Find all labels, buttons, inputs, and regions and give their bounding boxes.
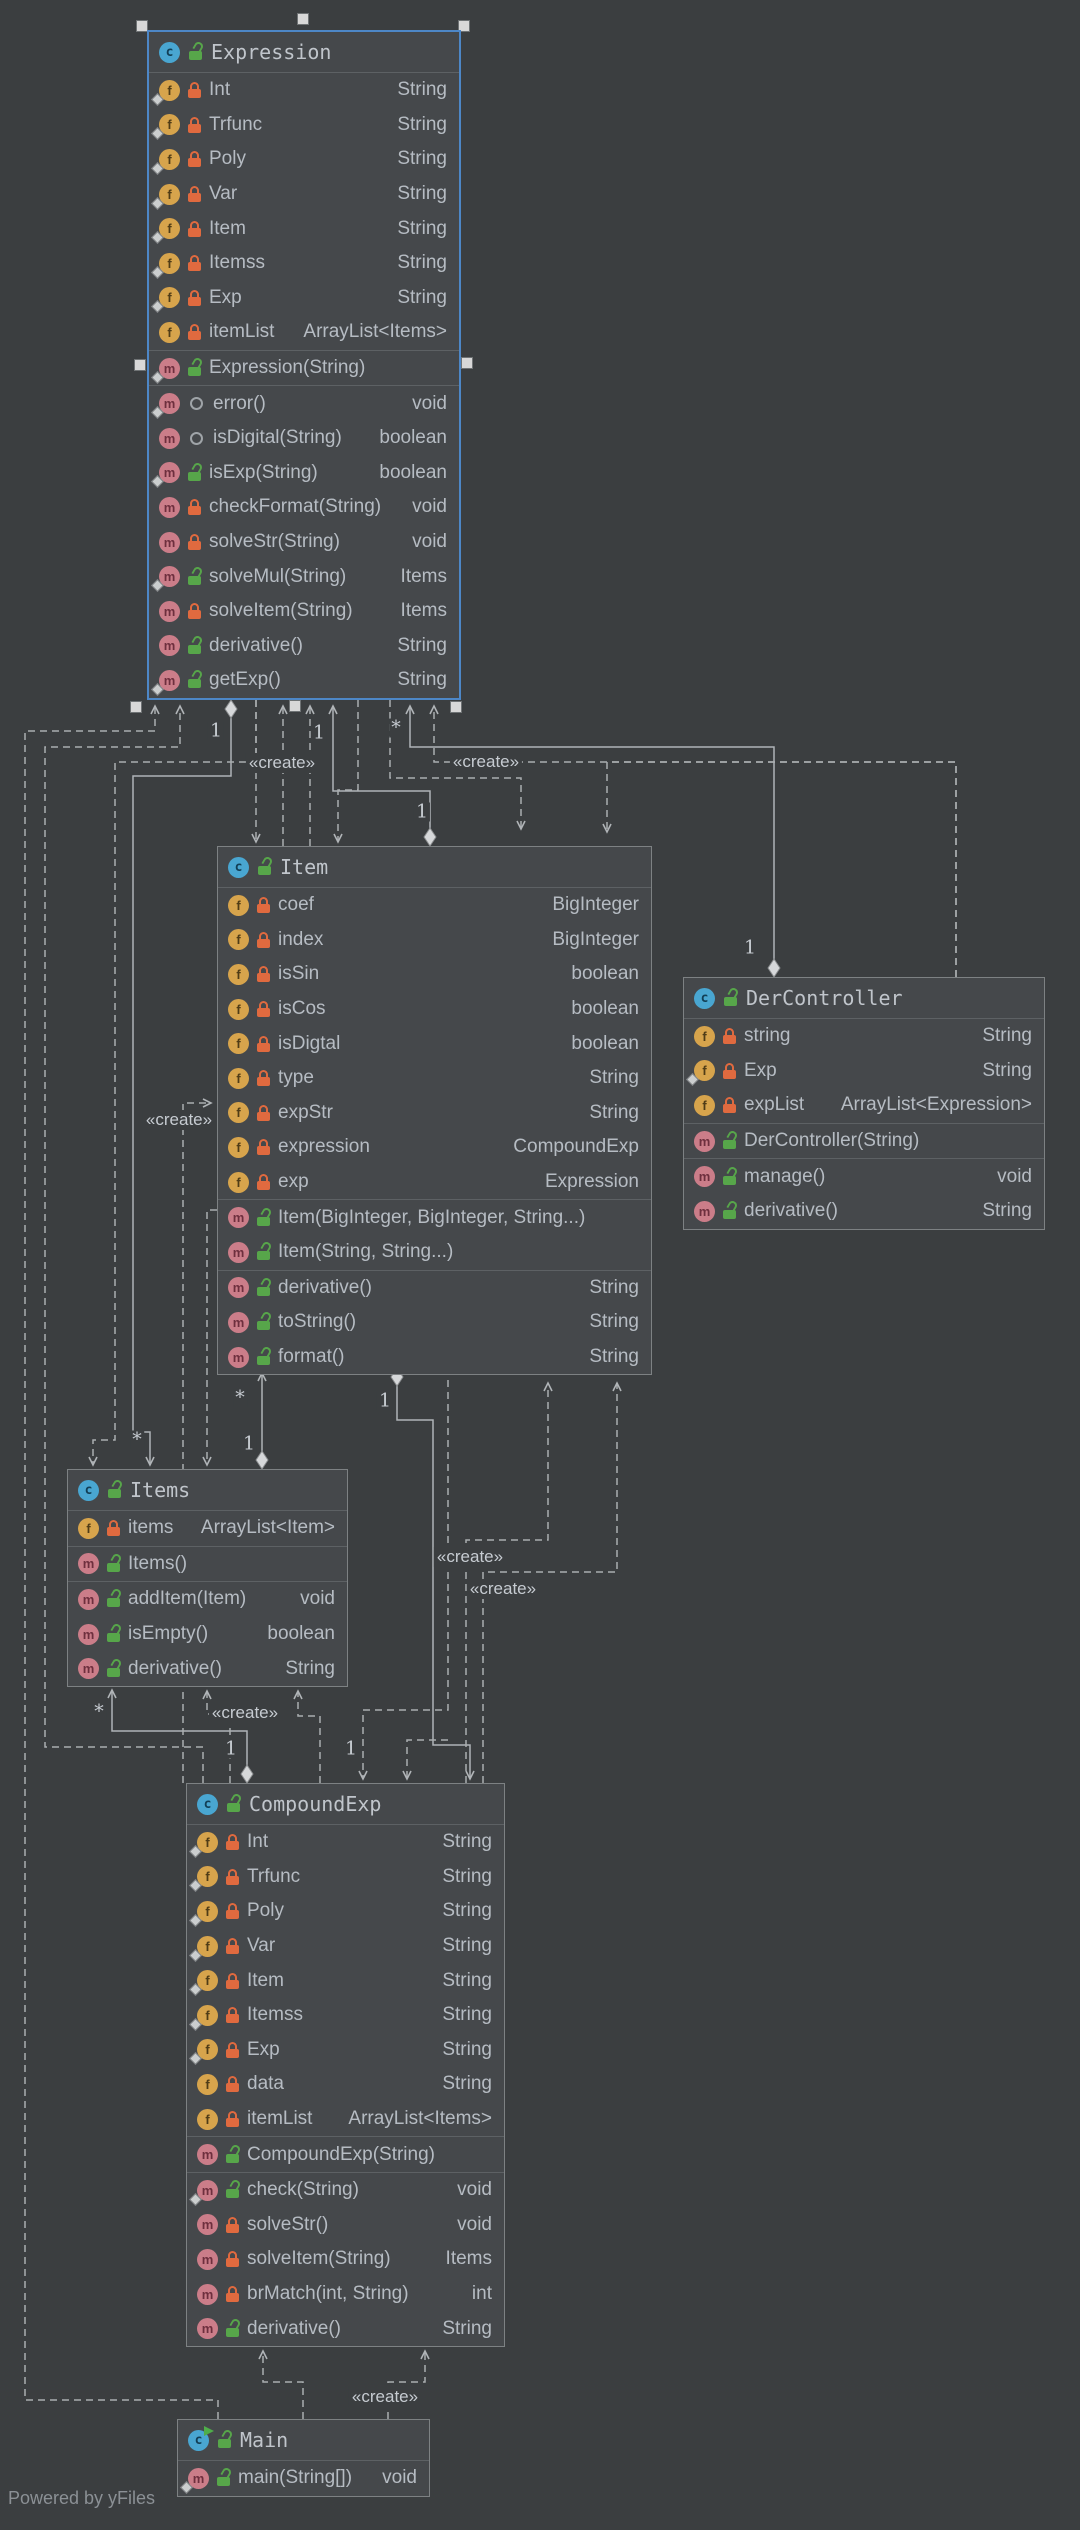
method-icon: m [159, 601, 180, 622]
public-lock-icon [723, 1133, 736, 1149]
public-lock-icon [188, 465, 201, 481]
final-marker-icon [189, 2018, 202, 2031]
member-row-trfunc: fTrfuncString [149, 108, 459, 143]
methods-section: maddItem(Item)voidmisEmpty()booleanmderi… [68, 1581, 347, 1686]
method-icon: m [228, 1277, 249, 1298]
member-type: String [387, 252, 447, 274]
member-type: void [447, 2214, 492, 2236]
member-row-string: fstringString [684, 1019, 1044, 1054]
member-type: ArrayList<Item> [191, 1517, 335, 1539]
member-row-additem-item-: maddItem(Item)void [68, 1582, 347, 1617]
member-type: Expression [535, 1171, 639, 1193]
class-name: DerController [746, 986, 903, 1010]
field-icon: f [197, 2039, 218, 2060]
member-name: checkFormat(String) [209, 496, 381, 518]
member-name: Trfunc [247, 1866, 300, 1888]
member-name: manage() [744, 1166, 825, 1188]
multiplicity-label: 1 [208, 722, 224, 741]
public-lock-icon [257, 1244, 270, 1260]
member-type: String [579, 1277, 639, 1299]
member-type: String [432, 2073, 492, 2095]
method-icon: m [159, 670, 180, 691]
fields-section: fcoefBigIntegerfindexBigIntegerfisSinboo… [218, 887, 651, 1199]
method-icon: m [228, 1242, 249, 1263]
member-name: solveItem(String) [247, 2248, 391, 2270]
public-lock-icon [107, 1591, 120, 1607]
class-title-row[interactable]: cExpression [149, 32, 459, 72]
private-lock-icon [226, 1973, 239, 1989]
field-icon: f [159, 80, 180, 101]
member-type: String [387, 218, 447, 240]
member-type: Items [391, 566, 447, 588]
member-row-poly: fPolyString [149, 142, 459, 177]
member-name: Var [247, 1935, 275, 1957]
member-type: String [579, 1067, 639, 1089]
member-row-index: findexBigInteger [218, 923, 651, 958]
public-lock-icon [257, 1280, 270, 1296]
private-lock-icon [723, 1097, 736, 1113]
private-lock-icon [188, 82, 201, 98]
member-row-expression: fexpressionCompoundExp [218, 1130, 651, 1165]
private-lock-icon [188, 499, 201, 515]
member-name: derivative() [247, 2318, 341, 2340]
private-lock-icon [226, 2286, 239, 2302]
multiplicity-label: 1 [343, 1740, 359, 1759]
field-icon: f [694, 1060, 715, 1081]
member-name: itemList [247, 2108, 312, 2130]
class-title-row[interactable]: cDerController [684, 978, 1044, 1018]
member-name: getExp() [209, 669, 281, 691]
class-name: Item [280, 855, 328, 879]
method-icon: m [78, 1658, 99, 1679]
member-row-solveitem-string-: msolveItem(String)Items [187, 2242, 504, 2277]
member-type: BigInteger [542, 929, 639, 951]
member-row-itemlist: fitemListArrayList<Items> [187, 2102, 504, 2137]
method-icon: m [159, 428, 180, 449]
public-lock-icon [217, 2470, 230, 2486]
member-name: solveMul(String) [209, 566, 346, 588]
member-name: Int [247, 1831, 268, 1853]
method-icon: m [78, 1624, 99, 1645]
member-name: Var [209, 183, 237, 205]
member-row-exp: fExpString [187, 2033, 504, 2068]
public-lock-icon [188, 360, 201, 376]
field-icon: f [197, 1832, 218, 1853]
field-icon: f [197, 2074, 218, 2095]
class-node-items[interactable]: cItemsfitemsArrayList<Item>mItems()maddI… [67, 1469, 348, 1687]
member-row-isdigital-string-: misDigital(String)boolean [149, 421, 459, 456]
member-row-derivative-: mderivative()String [187, 2311, 504, 2346]
member-name: isSin [278, 963, 319, 985]
methods-section: mderivative()StringmtoString()Stringmfor… [218, 1270, 651, 1375]
method-icon: m [197, 2214, 218, 2235]
private-lock-icon [226, 1834, 239, 1850]
member-type: Items [436, 2248, 492, 2270]
class-icon: c [188, 2430, 209, 2451]
member-row-isdigtal: fisDigtalboolean [218, 1026, 651, 1061]
class-title-row[interactable]: cCompoundExp [187, 1784, 504, 1824]
member-row-solvestr-: msolveStr()void [187, 2208, 504, 2243]
member-name: expList [744, 1094, 804, 1116]
member-row-derivative-: mderivative()String [149, 629, 459, 664]
member-row-isexp-string-: misExp(String)boolean [149, 456, 459, 491]
field-icon: f [159, 149, 180, 170]
member-type: boolean [369, 427, 447, 449]
member-type: String [432, 2004, 492, 2026]
field-icon: f [197, 1901, 218, 1922]
field-icon: f [228, 1137, 249, 1158]
member-name: derivative() [744, 1200, 838, 1222]
member-row-isempty-: misEmpty()boolean [68, 1617, 347, 1652]
private-lock-icon [226, 2251, 239, 2267]
public-lock-icon [107, 1556, 120, 1572]
yfiles-watermark: Powered by yFiles [8, 2488, 155, 2509]
member-name: format() [278, 1346, 345, 1368]
field-icon: f [694, 1026, 715, 1047]
member-type: void [402, 496, 447, 518]
member-name: Expression(String) [209, 357, 365, 379]
private-lock-icon [257, 966, 270, 982]
member-type: String [972, 1200, 1032, 1222]
member-row-solvemul-string-: msolveMul(String)Items [149, 559, 459, 594]
class-node-dercontroller[interactable]: cDerControllerfstringStringfExpStringfex… [683, 977, 1045, 1230]
member-row-itemlist: fitemListArrayList<Items> [149, 315, 459, 350]
class-icon: c [78, 1480, 99, 1501]
method-icon: m [228, 1347, 249, 1368]
member-row-var: fVarString [187, 1929, 504, 1964]
constructors-section: mItem(BigInteger, BigInteger, String...)… [218, 1199, 651, 1269]
method-icon: m [197, 2180, 218, 2201]
private-lock-icon [188, 290, 201, 306]
member-name: solveItem(String) [209, 600, 353, 622]
field-icon: f [197, 1936, 218, 1957]
class-icon: c [197, 1794, 218, 1815]
member-name: DerController(String) [744, 1130, 919, 1152]
public-lock-icon [107, 1661, 120, 1677]
create-stereotype-label: «create» [467, 1579, 539, 1599]
method-icon: m [228, 1207, 249, 1228]
member-type: ArrayList<Expression> [831, 1094, 1032, 1116]
member-type: void [447, 2179, 492, 2201]
member-row-item: fItemString [187, 1963, 504, 1998]
final-marker-icon [151, 197, 164, 210]
field-icon: f [197, 2005, 218, 2026]
private-lock-icon [226, 2076, 239, 2092]
member-row-solvestr-string-: msolveStr(String)void [149, 525, 459, 560]
member-row-itemss: fItemssString [149, 246, 459, 281]
member-row-int: fIntString [149, 73, 459, 108]
member-name: Trfunc [209, 114, 262, 136]
member-type: boolean [561, 963, 639, 985]
private-lock-icon [188, 603, 201, 619]
methods-section: mmain(String[])void [178, 2460, 429, 2496]
public-lock-icon [257, 1349, 270, 1365]
method-icon: m [694, 1201, 715, 1222]
fields-section: fitemsArrayList<Item> [68, 1510, 347, 1546]
member-type: String [387, 183, 447, 205]
field-icon: f [197, 1970, 218, 1991]
final-marker-icon [189, 1949, 202, 1962]
member-name: isDigital(String) [213, 427, 342, 449]
field-icon: f [159, 253, 180, 274]
final-marker-icon [151, 300, 164, 313]
member-name: index [278, 929, 323, 951]
final-marker-icon [189, 1880, 202, 1893]
member-name: Itemss [247, 2004, 303, 2026]
final-marker-icon [151, 93, 164, 106]
field-icon: f [78, 1518, 99, 1539]
member-type: boolean [257, 1623, 335, 1645]
member-type: boolean [561, 1033, 639, 1055]
class-node-compoundexp[interactable]: cCompoundExpfIntStringfTrfuncStringfPoly… [186, 1783, 505, 2347]
member-name: addItem(Item) [128, 1588, 246, 1610]
package-visibility-icon [190, 397, 203, 410]
member-type: ArrayList<Items> [293, 321, 447, 343]
member-type: Items [391, 600, 447, 622]
multiplicity-label: 1 [241, 1435, 257, 1454]
member-name: coef [278, 894, 314, 916]
public-lock-icon [188, 672, 201, 688]
member-row-trfunc: fTrfuncString [187, 1860, 504, 1895]
member-name: Int [209, 79, 230, 101]
member-type: BigInteger [542, 894, 639, 916]
member-row-item-biginteger-biginteger-string-: mItem(BigInteger, BigInteger, String...) [218, 1200, 651, 1235]
private-lock-icon [188, 151, 201, 167]
class-name: Items [130, 1478, 190, 1502]
member-type: String [387, 669, 447, 691]
member-name: check(String) [247, 2179, 359, 2201]
member-row-brmatch-int-string-: mbrMatch(int, String)int [187, 2277, 504, 2312]
method-icon: m [159, 358, 180, 379]
method-icon: m [197, 2318, 218, 2339]
member-type: void [372, 2467, 417, 2489]
member-row-solveitem-string-: msolveItem(String)Items [149, 594, 459, 629]
public-lock-icon [108, 1482, 121, 1498]
private-lock-icon [188, 534, 201, 550]
method-icon: m [78, 1553, 99, 1574]
member-name: isCos [278, 998, 326, 1020]
final-marker-icon [151, 128, 164, 141]
method-icon: m [159, 635, 180, 656]
member-row-tostring-: mtoString()String [218, 1305, 651, 1340]
create-stereotype-label: «create» [209, 1703, 281, 1723]
package-visibility-icon [190, 432, 203, 445]
public-lock-icon [723, 1169, 736, 1185]
private-lock-icon [107, 1520, 120, 1536]
final-marker-icon [151, 371, 164, 384]
private-lock-icon [188, 186, 201, 202]
member-row-expstr: fexpStrString [218, 1096, 651, 1131]
methods-section: mmanage()voidmderivative()String [684, 1158, 1044, 1228]
member-row-derivative-: mderivative()String [218, 1271, 651, 1306]
public-lock-icon [226, 2147, 239, 2163]
member-name: isDigtal [278, 1033, 340, 1055]
member-type: String [972, 1060, 1032, 1082]
member-type: ArrayList<Items> [338, 2108, 492, 2130]
method-icon: m [694, 1166, 715, 1187]
member-name: exp [278, 1171, 309, 1193]
final-marker-icon [151, 683, 164, 696]
field-icon: f [159, 218, 180, 239]
member-type: String [387, 287, 447, 309]
member-name: expression [278, 1136, 370, 1158]
member-type: String [275, 1658, 335, 1680]
member-row-explist: fexpListArrayList<Expression> [684, 1088, 1044, 1123]
member-row-int: fIntString [187, 1825, 504, 1860]
member-type: String [432, 1900, 492, 1922]
public-lock-icon [257, 1314, 270, 1330]
member-row-poly: fPolyString [187, 1894, 504, 1929]
class-node-item[interactable]: cItemfcoefBigIntegerfindexBigIntegerfisS… [217, 846, 652, 1375]
class-title-row[interactable]: cItem [218, 847, 651, 887]
member-row-checkformat-string-: mcheckFormat(String)void [149, 490, 459, 525]
fields-section: fIntStringfTrfuncStringfPolyStringfVarSt… [187, 1824, 504, 2136]
member-type: String [432, 1970, 492, 1992]
member-type: boolean [561, 998, 639, 1020]
member-type: String [432, 2318, 492, 2340]
final-marker-icon [189, 1914, 202, 1927]
member-name: derivative() [278, 1277, 372, 1299]
method-icon: m [78, 1589, 99, 1610]
member-row-compoundexp-string-: mCompoundExp(String) [187, 2137, 504, 2172]
member-row-item-string-string-: mItem(String, String...) [218, 1235, 651, 1270]
field-icon: f [228, 1102, 249, 1123]
member-type: String [972, 1025, 1032, 1047]
private-lock-icon [257, 1001, 270, 1017]
member-row-derivative-: mderivative()String [68, 1651, 347, 1686]
class-node-expression[interactable]: cExpressionfIntStringfTrfuncStringfPolyS… [147, 30, 461, 700]
class-name: Main [240, 2428, 288, 2452]
private-lock-icon [257, 1174, 270, 1190]
public-lock-icon [188, 569, 201, 585]
public-lock-icon [218, 2432, 231, 2448]
method-icon: m [188, 2468, 209, 2489]
create-stereotype-label: «create» [143, 1110, 215, 1130]
class-title-row[interactable]: cItems [68, 1470, 347, 1510]
member-type: String [432, 2039, 492, 2061]
field-icon: f [159, 287, 180, 308]
member-type: String [579, 1346, 639, 1368]
member-name: CompoundExp(String) [247, 2144, 435, 2166]
private-lock-icon [723, 1063, 736, 1079]
method-icon: m [197, 2284, 218, 2305]
field-icon: f [159, 114, 180, 135]
private-lock-icon [226, 1938, 239, 1954]
method-icon: m [197, 2144, 218, 2165]
private-lock-icon [226, 1869, 239, 1885]
create-stereotype-label: «create» [246, 753, 318, 773]
member-name: expStr [278, 1102, 333, 1124]
field-icon: f [228, 1033, 249, 1054]
public-lock-icon [226, 2321, 239, 2337]
member-row-coef: fcoefBigInteger [218, 888, 651, 923]
member-name: type [278, 1067, 314, 1089]
private-lock-icon [257, 1036, 270, 1052]
private-lock-icon [257, 932, 270, 948]
final-marker-icon [151, 579, 164, 592]
class-icon: c [228, 857, 249, 878]
private-lock-icon [257, 1070, 270, 1086]
final-marker-icon [189, 1983, 202, 1996]
member-row-items: fitemsArrayList<Item> [68, 1511, 347, 1546]
final-marker-icon [151, 475, 164, 488]
member-type: String [432, 1935, 492, 1957]
member-row-format-: mformat()String [218, 1340, 651, 1375]
member-row-exp: fExpString [684, 1054, 1044, 1089]
final-marker-icon [189, 1845, 202, 1858]
final-marker-icon [151, 266, 164, 279]
public-lock-icon [724, 990, 737, 1006]
member-name: isExp(String) [209, 462, 318, 484]
method-icon: m [159, 393, 180, 414]
uml-diagram-canvas[interactable]: cExpressionfIntStringfTrfuncStringfPolyS… [0, 0, 1080, 2530]
field-icon: f [228, 1172, 249, 1193]
member-name: solveStr() [247, 2214, 328, 2236]
public-lock-icon [189, 44, 202, 60]
class-name: Expression [211, 40, 331, 64]
member-name: derivative() [128, 1658, 222, 1680]
member-row-dercontroller-string-: mDerController(String) [684, 1124, 1044, 1159]
create-stereotype-label: «create» [349, 2387, 421, 2407]
public-lock-icon [258, 859, 271, 875]
final-marker-icon [686, 1074, 699, 1087]
multiplicity-label: 1 [311, 724, 327, 743]
member-type: void [402, 531, 447, 553]
private-lock-icon [257, 897, 270, 913]
member-name: Item(BigInteger, BigInteger, String...) [278, 1207, 585, 1229]
multiplicity-label: * [389, 719, 403, 738]
member-row-check-string-: mcheck(String)void [187, 2173, 504, 2208]
constructors-section: mItems() [68, 1546, 347, 1582]
member-row-exp: fexpExpression [218, 1165, 651, 1200]
member-type: String [432, 1866, 492, 1888]
methods-section: mcheck(String)voidmsolveStr()voidmsolveI… [187, 2172, 504, 2346]
method-icon: m [159, 566, 180, 587]
field-icon: f [159, 184, 180, 205]
multiplicity-label: 1 [223, 1740, 239, 1759]
member-name: Exp [744, 1060, 777, 1082]
member-name: string [744, 1025, 790, 1047]
member-row-iscos: fisCosboolean [218, 992, 651, 1027]
class-name: CompoundExp [249, 1792, 381, 1816]
member-row-expression-string-: mExpression(String) [149, 351, 459, 386]
method-icon: m [228, 1312, 249, 1333]
method-icon: m [159, 532, 180, 553]
constructors-section: mDerController(String) [684, 1123, 1044, 1159]
multiplicity-label: * [92, 1703, 106, 1722]
public-lock-icon [226, 2182, 239, 2198]
private-lock-icon [188, 324, 201, 340]
member-name: solveStr(String) [209, 531, 340, 553]
member-name: items [128, 1517, 173, 1539]
private-lock-icon [226, 2217, 239, 2233]
final-marker-icon [189, 2193, 202, 2206]
multiplicity-label: * [130, 1431, 144, 1450]
class-title-row[interactable]: cMain [178, 2420, 429, 2460]
public-lock-icon [188, 638, 201, 654]
member-name: derivative() [209, 635, 303, 657]
final-marker-icon [151, 162, 164, 175]
member-type: String [579, 1102, 639, 1124]
final-marker-icon [151, 406, 164, 419]
member-type: void [290, 1588, 335, 1610]
method-icon: m [694, 1131, 715, 1152]
member-name: Item [247, 1970, 284, 1992]
member-name: Item(String, String...) [278, 1241, 453, 1263]
member-row-manage-: mmanage()void [684, 1159, 1044, 1194]
private-lock-icon [257, 1105, 270, 1121]
class-node-main[interactable]: cMainmmain(String[])void [177, 2419, 430, 2497]
